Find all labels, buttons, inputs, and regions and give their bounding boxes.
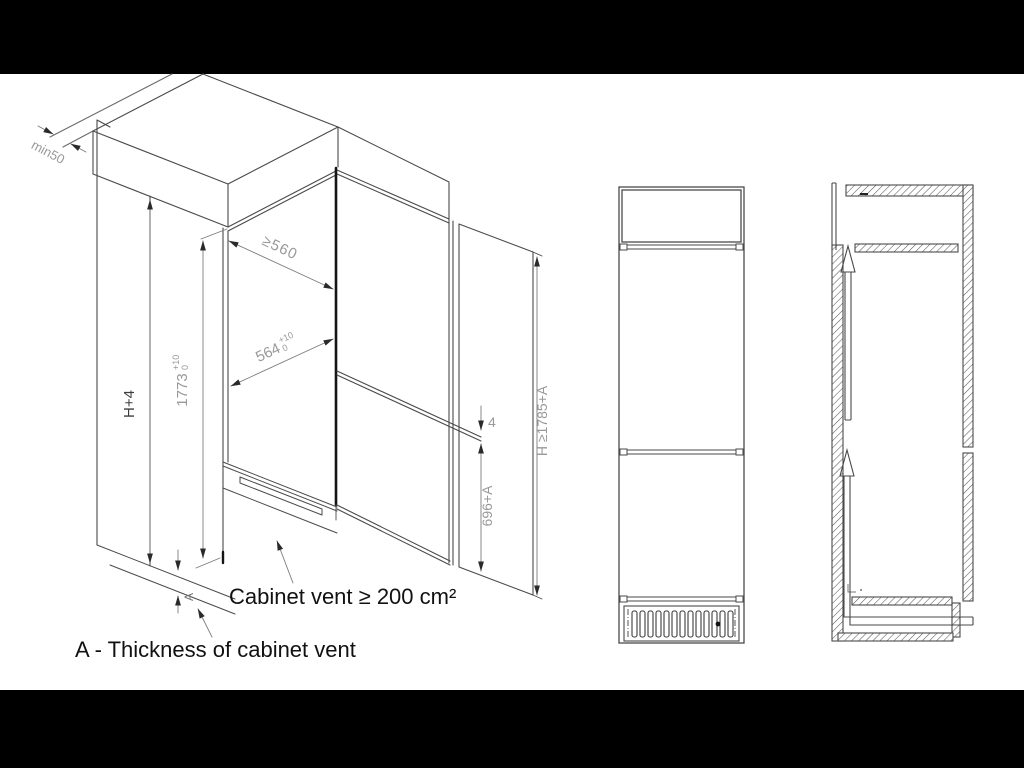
- svg-text:564: 564: [253, 340, 283, 366]
- dimension-lower-section-label: 696+A: [479, 485, 495, 527]
- front-view: [619, 187, 744, 643]
- svg-text:+10: +10: [277, 330, 295, 346]
- front-outline: [619, 187, 744, 643]
- dimension-min50-arrow-b: [71, 144, 86, 152]
- hatched-bottom-shelf: [852, 597, 952, 605]
- hatched-floor: [838, 633, 953, 641]
- dimension-outer-height-label: H+4: [121, 390, 138, 418]
- drawing-canvas: min50 ≥560 564 +10 0 1773 +10 0 H+4 4 69…: [0, 0, 1024, 768]
- dimension-width-label: 564 +10 0: [252, 330, 299, 366]
- technical-drawing-page: min50 ≥560 564 +10 0 1773 +10 0 H+4 4 69…: [0, 0, 1024, 768]
- dimension-lines: [38, 126, 537, 637]
- side-section-view: [832, 183, 973, 641]
- right-wall-panel: [459, 224, 542, 599]
- vent-leader-line: [277, 541, 293, 583]
- hatched-compartment-shelf: [855, 244, 958, 252]
- thickness-leader-line: [198, 609, 212, 637]
- left-wall-panel: [97, 120, 235, 614]
- hatched-left-wall: [832, 245, 843, 641]
- dimension-total-height-label: H ≥1785+A: [534, 385, 550, 456]
- dimension-niche-height-label: 1773 +10 0: [171, 355, 191, 407]
- left-upper-wall-lines: [832, 183, 836, 250]
- dimension-min50-arrow-a: [38, 126, 53, 134]
- hatched-right-wall-upper: [963, 185, 973, 447]
- svg-text:0: 0: [180, 365, 190, 370]
- grille-fixing-dot: [716, 622, 721, 627]
- dimension-depth-label: ≥560: [259, 232, 300, 263]
- vent-thickness-marker: A: [182, 593, 196, 601]
- hatched-duct-column: [952, 603, 960, 637]
- svg-text:0: 0: [281, 342, 290, 353]
- caption-vent-thickness: A - Thickness of cabinet vent: [75, 637, 356, 662]
- front-top-panel: [622, 190, 741, 242]
- svg-text:1773: 1773: [174, 373, 191, 406]
- niche-opening: [223, 168, 481, 565]
- dimension-door-gap-label: 4: [488, 414, 496, 430]
- hatched-right-wall-lower: [963, 453, 973, 601]
- bottom-letterbox-bar: [0, 690, 1024, 768]
- top-box: [93, 127, 449, 227]
- niche-floor-vent: [223, 462, 337, 533]
- front-divider-strips: [620, 244, 743, 602]
- caption-cabinet-vent: Cabinet vent ≥ 200 cm²: [229, 584, 456, 609]
- isometric-view: [38, 74, 542, 637]
- top-letterbox-bar: [0, 0, 1024, 74]
- iso-dimension-labels: min50 ≥560 564 +10 0 1773 +10 0 H+4 4 69…: [29, 137, 550, 601]
- dimension-min50-label: min50: [29, 137, 67, 167]
- vent-grille: [624, 606, 739, 641]
